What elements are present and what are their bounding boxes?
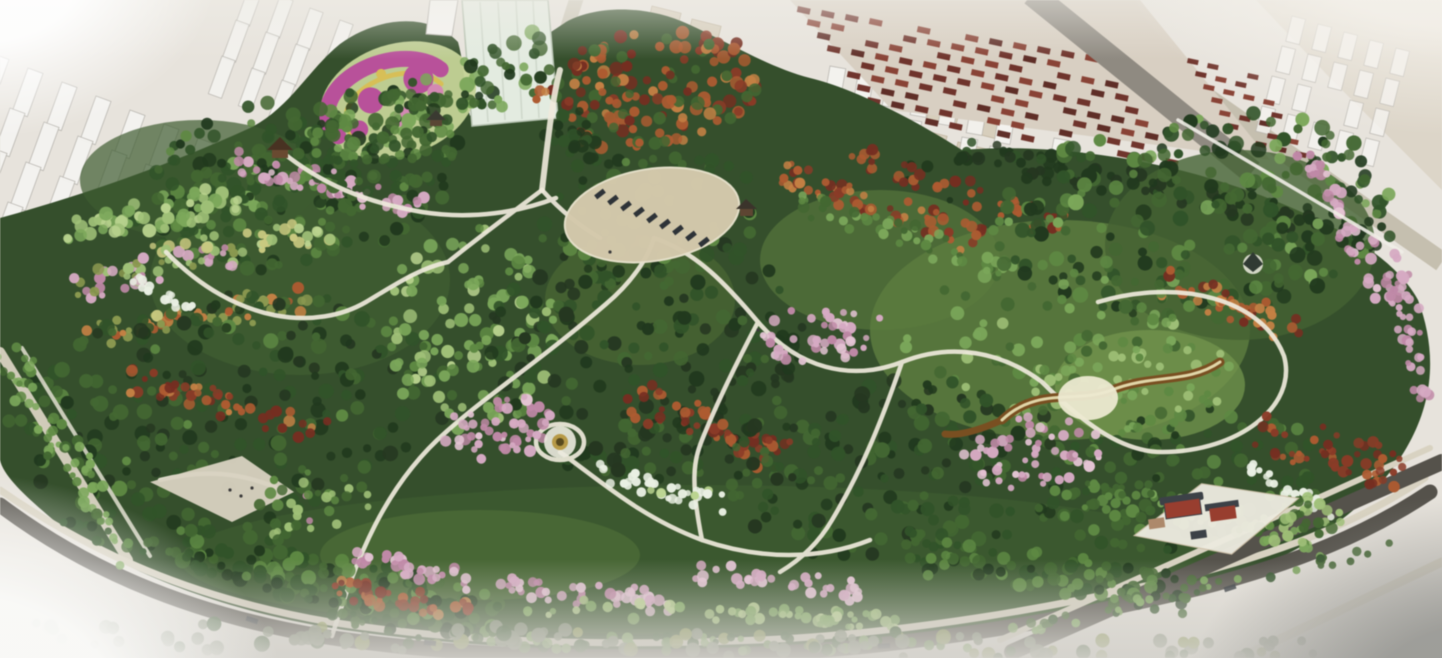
lawn-dome (1058, 376, 1118, 420)
pavilion-central (544, 426, 576, 458)
scene-canvas (0, 0, 1442, 658)
park-aerial-rendering (0, 0, 1442, 658)
